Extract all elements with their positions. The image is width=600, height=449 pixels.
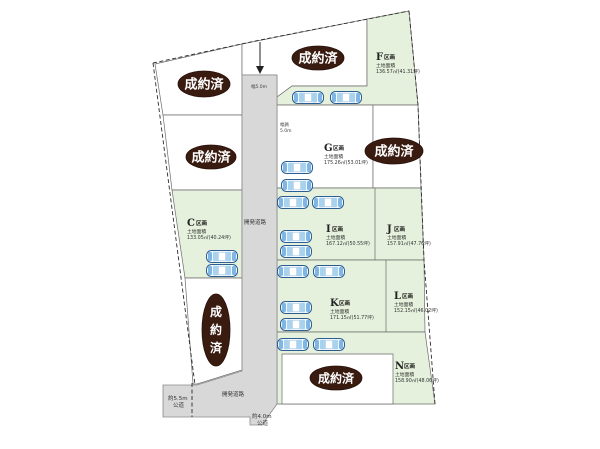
- lot-area-label: 土地面積: [330, 308, 349, 315]
- lot-letter: J: [386, 224, 392, 235]
- road-width-note-side: 幅員: [280, 121, 289, 128]
- lot-area-value: 167.12㎡(50.55坪): [326, 240, 370, 247]
- sold-badge-top-left: 成約済: [178, 71, 230, 97]
- road-label-public-left: 公道: [173, 401, 185, 409]
- lot-suffix: 区画: [332, 225, 344, 233]
- lot-area-value: 158.90㎡(48.06坪): [395, 377, 439, 384]
- lot-area-value: 175.26㎡(53.01坪): [324, 159, 368, 166]
- lot-suffix: 区画: [339, 299, 351, 307]
- car-icon: [278, 197, 309, 209]
- car-icon: [207, 265, 238, 277]
- car-icon: [314, 339, 345, 351]
- road-label-public-right: 約4.0m: [252, 412, 272, 420]
- sold-label-char: 成: [210, 304, 222, 319]
- lot-letter: C: [187, 218, 195, 229]
- lot-letter: G: [324, 143, 333, 154]
- car-icon: [278, 266, 309, 278]
- sold-label: 成約済: [374, 144, 414, 160]
- lot-area-value: 171.15㎡(51.77坪): [330, 314, 374, 321]
- car-icon: [293, 92, 324, 104]
- car-icon: [278, 339, 309, 351]
- sold-label: 成約済: [318, 371, 355, 386]
- lot-letter: K: [330, 298, 339, 309]
- car-icon: [282, 180, 313, 192]
- sold-label: 成約済: [184, 77, 224, 93]
- lot-letter: L: [394, 291, 401, 302]
- lot-letter: I: [326, 224, 331, 235]
- lot-area-value: 136.57㎡(41.31坪): [376, 68, 420, 75]
- lot-area-label: 土地面積: [187, 228, 206, 235]
- sold-badge-mid-left: 成約済: [186, 145, 236, 169]
- sold-label-char: 約: [210, 322, 222, 337]
- car-icon: [281, 302, 312, 314]
- sold-badge-bottom-left-vertical: 成 約 済: [202, 294, 230, 366]
- car-icon: [207, 251, 238, 263]
- lot-suffix: 区画: [333, 144, 345, 152]
- road-width-note-top: 幅5.0m: [251, 83, 267, 90]
- sold-label: 成約済: [191, 150, 231, 166]
- road-label-public-right: 公道: [257, 419, 269, 427]
- car-icon: [281, 246, 312, 258]
- sold-badge-top-center: 成約済: [292, 46, 344, 70]
- sold-badge-right: 成約済: [365, 138, 423, 164]
- lot-suffix: 区画: [402, 292, 414, 300]
- car-icon: [313, 197, 344, 209]
- sold-badge-bottom-center: 成約済: [310, 366, 362, 390]
- lot-area-label: 土地面積: [394, 301, 413, 308]
- car-icon: [281, 231, 312, 243]
- sold-label-char: 済: [210, 340, 223, 355]
- lot-letter: N: [395, 361, 404, 372]
- lot-area-label: 土地面積: [376, 62, 395, 69]
- lot-suffix: 区画: [394, 225, 406, 233]
- car-icon: [282, 162, 313, 174]
- car-icon: [281, 319, 312, 331]
- lot-letter: F: [376, 52, 383, 63]
- lot-area-label: 土地面積: [326, 234, 345, 241]
- lot-area-value: 133.05㎡(40.24坪): [187, 234, 231, 241]
- road-label-public-left: 約5.5m: [168, 394, 188, 402]
- sold-label: 成約済: [298, 51, 338, 67]
- lot-area-label: 土地面積: [395, 371, 414, 378]
- site-plan: 成約済 成約済 成約済 成約済 成約済 成 約 済 C 区画 土地面積 133.…: [0, 0, 600, 449]
- lot-area-value: 157.91㎡(47.76坪): [387, 240, 431, 247]
- lot-suffix: 区画: [404, 362, 416, 370]
- lot-area-label: 土地面積: [387, 234, 406, 241]
- lot-suffix: 区画: [196, 219, 208, 227]
- site-plan-canvas: 成約済 成約済 成約済 成約済 成約済 成 約 済 C 区画 土地面積 133.…: [0, 0, 600, 449]
- lot-area-label: 土地面積: [324, 153, 343, 160]
- car-icon: [314, 266, 345, 278]
- road-width-note-side: 5.0m: [280, 128, 292, 134]
- lot-suffix: 区画: [384, 53, 396, 61]
- lot-area-value: 152.15㎡(46.02坪): [394, 307, 438, 314]
- road-label-development: 開発道路: [244, 218, 267, 226]
- car-icon: [331, 92, 362, 104]
- road-label-development-bottom: 開発道路: [222, 390, 245, 398]
